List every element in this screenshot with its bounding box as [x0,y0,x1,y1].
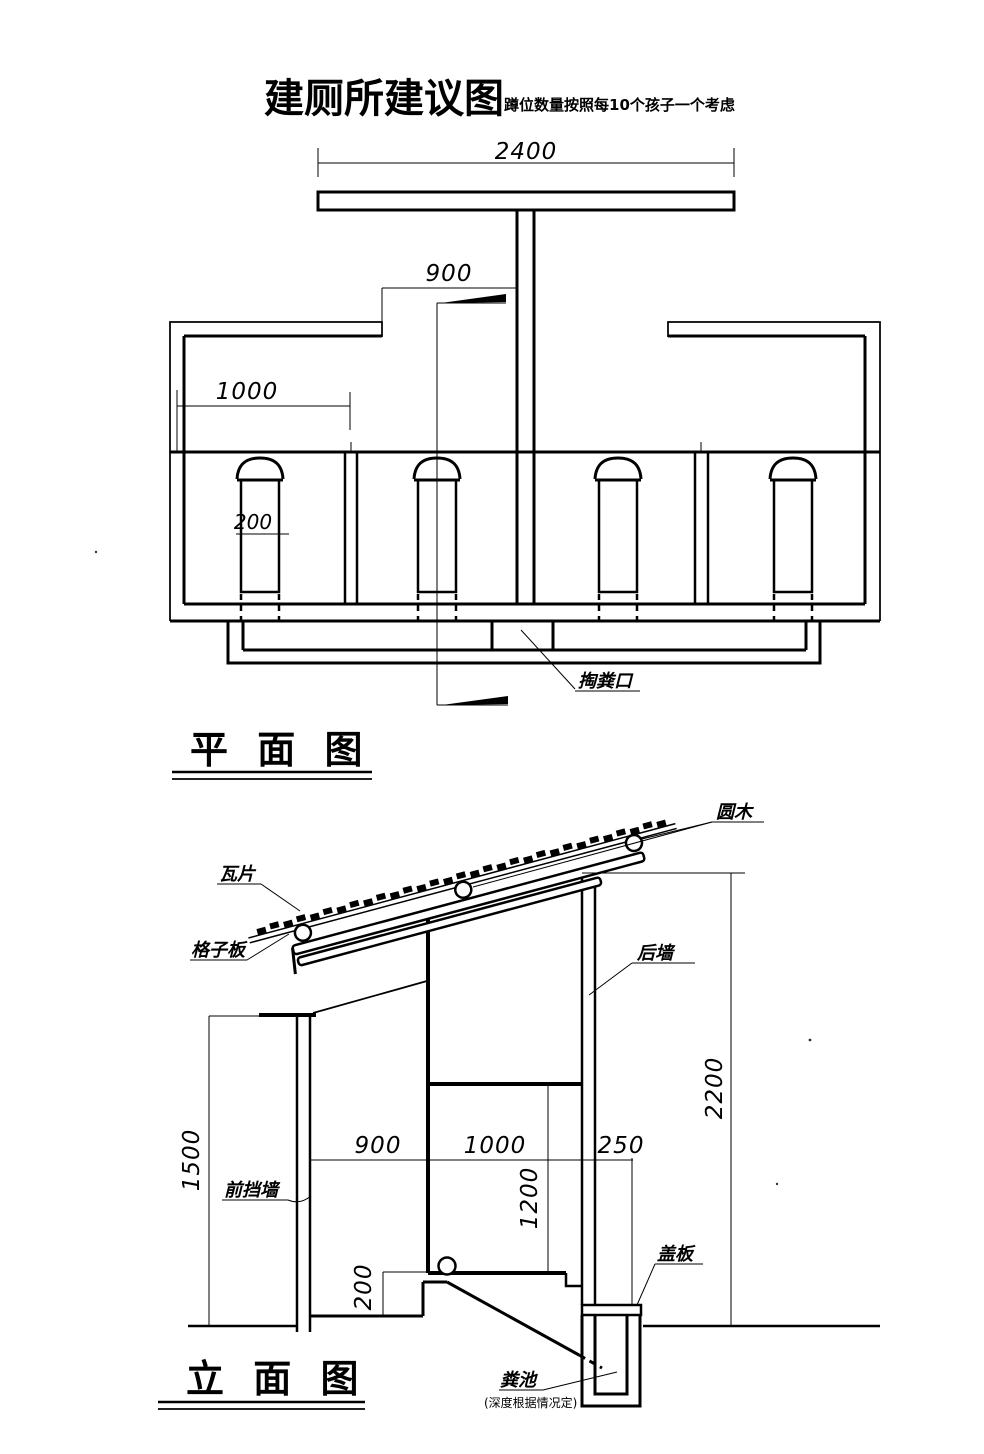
elevation-section-title: 立 面 图 [158,1357,366,1409]
plan-title-text: 平 面 图 [190,728,370,772]
dim-1000-plan: 1000 [216,379,279,405]
label-roof-tile: 瓦片 [219,864,257,885]
dim-200-elev: 200 [351,1264,377,1311]
label-manure-pit-note: (深度根据情况定) [484,1395,577,1410]
dim-1200: 1200 [517,1167,543,1230]
drawing-page: 建厕所建议图 蹲位数量按照每10个孩子一个考虑 2400 [0,0,984,1454]
construction-drawing: 建厕所建议图 蹲位数量按照每10个孩子一个考虑 2400 [0,0,984,1454]
page-title: 建厕所建议图 [264,76,504,122]
dim-2400: 2400 [495,139,558,165]
plan-section-title: 平 面 图 [172,728,372,779]
dim-1500: 1500 [179,1129,205,1192]
dim-1000-elev: 1000 [464,1133,527,1159]
page-subtitle: 蹲位数量按照每10个孩子一个考虑 [504,96,735,114]
cover-plate-slab [582,1305,641,1315]
dim-2200: 2200 [702,1057,728,1120]
paper-background [0,0,984,1454]
label-lattice-board: 格子板 [191,940,248,961]
label-cover-plate: 盖板 [657,1244,696,1265]
squat-hole-section [439,1258,456,1275]
label-round-log: 圆木 [716,802,754,823]
label-rear-wall: 后墙 [636,943,676,964]
dim-200-plan: 200 [234,510,272,534]
label-manure-pit: 粪池 [500,1370,538,1391]
dim-250: 250 [598,1133,645,1159]
elevation-title-text: 立 面 图 [186,1357,366,1401]
dim-900-elev: 900 [355,1133,402,1159]
dim-900-plan: 900 [426,261,473,287]
label-manure-access: 掏粪口 [578,671,634,692]
label-front-wall: 前挡墙 [224,1180,281,1201]
